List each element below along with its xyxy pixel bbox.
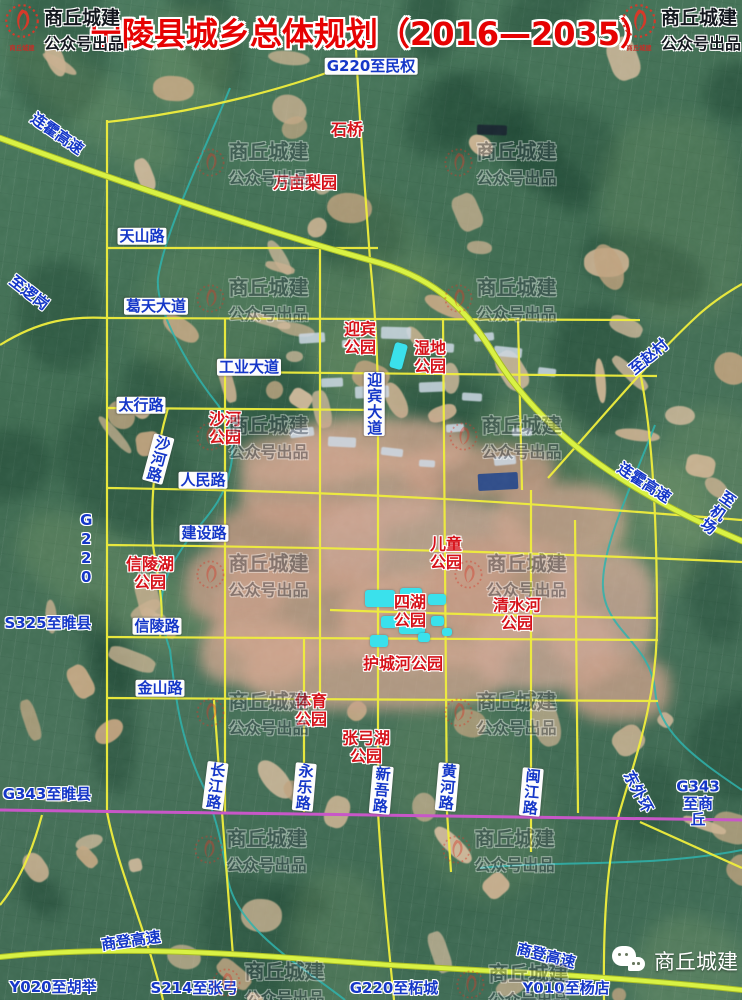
map-label-road-14: 黄河路: [435, 762, 460, 812]
phoenix-logo-icon: [211, 967, 241, 997]
lake: [431, 616, 444, 626]
map-label-road-9: 迎宾大道: [364, 372, 385, 436]
map-label-road-0: G220至民权: [325, 58, 418, 75]
map-label-dest-20: G343至睢县: [3, 786, 92, 803]
brand-subtitle: 公众号出品: [44, 30, 124, 54]
brand-watermark: 商丘城建公众号出品: [195, 548, 308, 601]
map-label-park-35: 湿地 公园: [414, 339, 446, 374]
brand-watermark: 商丘城建公众号出品: [211, 956, 324, 1000]
map-label-park-41: 护城河公园: [363, 655, 443, 673]
map-label-park-39: 四湖 公园: [394, 593, 426, 628]
brand-watermark: 商丘城建公众号出品: [441, 823, 554, 876]
phoenix-logo-icon: [443, 697, 473, 727]
wechat-footer: 商丘城建: [612, 946, 738, 976]
map-label-park-37: 信陵湖 公园: [126, 555, 174, 590]
phoenix-logo-icon: [443, 147, 473, 177]
brand-watermark: 商丘城建公众号出品: [443, 136, 556, 189]
phoenix-logo-icon: [441, 834, 471, 864]
phoenix-logo-icon: [443, 283, 473, 313]
wechat-icon: [612, 946, 646, 976]
map-label-park-34: 迎宾 公园: [344, 320, 376, 355]
lake: [428, 594, 446, 605]
map-label-road-15: 闽江路: [519, 767, 544, 817]
phoenix-logo-icon: [195, 283, 225, 313]
map-label-dest-25: G343至商丘: [676, 778, 720, 828]
footer-brand-name: 商丘城建: [654, 946, 738, 976]
map-label-road-2: 葛天大道: [124, 298, 188, 315]
phoenix-logo-icon: [621, 3, 657, 39]
map-label-road-3: 工业大道: [217, 359, 281, 376]
map-label-dest-18: G220: [78, 511, 95, 587]
lake: [418, 633, 430, 642]
map-label-dest-28: Y020至胡举: [9, 979, 96, 996]
brand-watermark: 商丘城建公众号出品: [195, 686, 308, 739]
phoenix-logo-icon: [195, 697, 225, 727]
logo-caption: 商丘城建: [9, 44, 34, 53]
brand-watermark: 商丘城建公众号出品: [195, 272, 308, 325]
map-label-park-40: 清水河 公园: [493, 596, 541, 631]
lake: [370, 635, 388, 647]
brand-watermark: 商丘城建公众号出品: [193, 823, 306, 876]
map-label-road-7: 信陵路: [132, 618, 181, 635]
lake: [365, 590, 395, 607]
page-title: 宁陵县城乡总体规划（2016—2035）: [90, 9, 652, 55]
map-label-road-5: 人民路: [178, 472, 227, 489]
brand-watermark: 商丘城建公众号出品: [443, 272, 556, 325]
map-label-road-8: 金山路: [135, 680, 184, 697]
logo-caption: 商丘城建: [626, 44, 651, 53]
watermarks-layer: 商丘城建公众号出品 商丘城建公众号出品 商丘城建公众号出品 商丘城建公众号出品 …: [0, 0, 742, 1000]
phoenix-logo-icon: [195, 147, 225, 177]
brand-stamp-right: 商丘城建 商丘城建 公众号出品: [620, 3, 741, 54]
brand-watermark: 商丘城建公众号出品: [443, 686, 556, 739]
brand-stamp-left: 商丘城建 商丘城建 公众号出品: [3, 3, 124, 54]
phoenix-logo-icon: [4, 3, 40, 43]
map-label-dest-30: G220至柘城: [350, 980, 439, 997]
brand-name: 商丘城建: [661, 3, 741, 30]
phoenix-logo-icon: [193, 834, 223, 864]
map-label-dest-19: S325至睢县: [4, 615, 91, 632]
map-label-park-43: 张弓湖 公园: [342, 729, 390, 764]
lake: [442, 628, 452, 636]
brand-watermark: 商丘城建公众号出品: [448, 410, 561, 463]
map-label-road-12: 永乐路: [292, 762, 317, 812]
map-label-road-4: 太行路: [116, 397, 165, 414]
brand-watermark: 商丘城建公众号出品: [195, 410, 308, 463]
brand-watermark: 商丘城建公众号出品: [453, 548, 566, 601]
phoenix-logo-icon: [453, 559, 483, 589]
phoenix-logo-icon: [195, 559, 225, 589]
phoenix-logo-icon: [448, 421, 478, 451]
phoenix-logo-icon: [195, 421, 225, 451]
brand-watermark: 商丘城建公众号出品: [455, 958, 568, 1000]
phoenix-logo-icon: [455, 969, 485, 999]
brand-subtitle: 公众号出品: [661, 30, 741, 54]
brand-watermark: 商丘城建公众号出品: [195, 136, 308, 189]
brand-name: 商丘城建: [44, 3, 124, 30]
map-label-road-13: 新吾路: [369, 765, 394, 815]
map-label-park-32: 石桥: [331, 121, 363, 139]
map-label-road-6: 建设路: [179, 525, 228, 542]
phoenix-logo-icon: [4, 3, 40, 39]
phoenix-logo-icon: [621, 3, 657, 43]
satellite-map: G220至民权天山路葛天大道工业大道太行路人民路建设路信陵路金山路迎宾大道沙河路…: [0, 0, 742, 1000]
map-label-road-1: 天山路: [117, 228, 166, 245]
